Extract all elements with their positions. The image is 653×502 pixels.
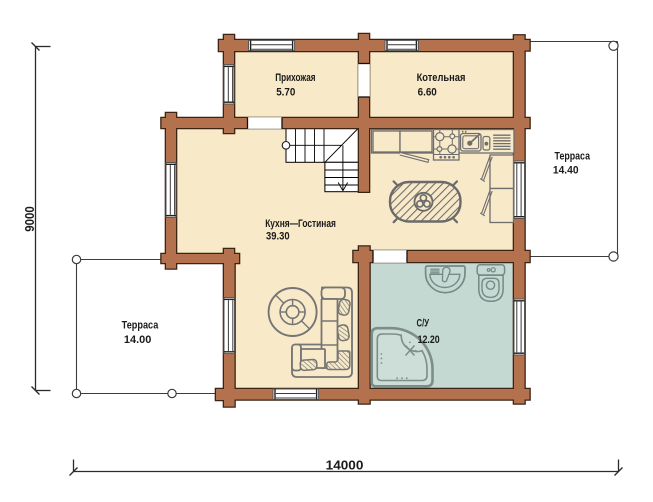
svg-text:Кухня—Гостиная: Кухня—Гостиная	[265, 218, 336, 230]
svg-text:14.00: 14.00	[124, 334, 151, 346]
svg-text:39.30: 39.30	[266, 231, 290, 243]
svg-text:Терраса: Терраса	[555, 151, 591, 163]
svg-text:Котельная: Котельная	[417, 72, 466, 84]
svg-text:12.20: 12.20	[418, 334, 440, 346]
svg-text:Прихожая: Прихожая	[275, 72, 315, 84]
svg-text:С/У: С/У	[417, 318, 430, 330]
svg-text:14000: 14000	[326, 458, 364, 472]
svg-text:Терраса: Терраса	[122, 320, 159, 332]
svg-text:14.40: 14.40	[553, 165, 579, 177]
svg-text:5.70: 5.70	[276, 86, 295, 98]
svg-text:6.60: 6.60	[418, 86, 437, 98]
svg-text:9000: 9000	[23, 206, 37, 232]
